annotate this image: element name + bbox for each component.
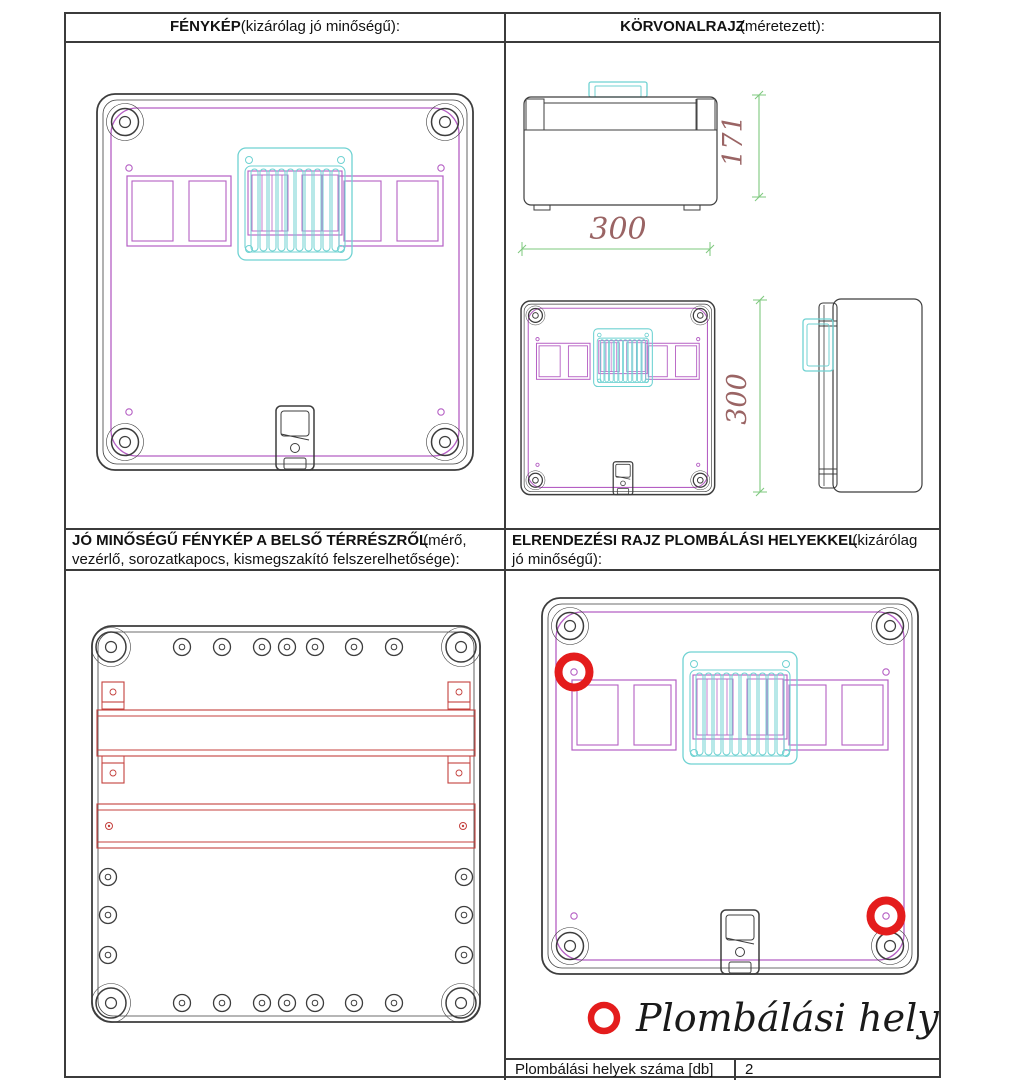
legend-seal-circle [591, 1005, 617, 1031]
dimension-label: 300 [589, 212, 646, 247]
sealing-layout-drawing: Plombálási hely [506, 569, 943, 1058]
outline-title-rest: (méretezett): [740, 18, 825, 35]
outline-dimension-drawing: 171300300 [506, 41, 943, 528]
seal-location-marker [871, 901, 902, 932]
document-page: { "colors": { "line": "#3d3d3d", "magent… [0, 0, 1024, 1088]
form-table: FÉNYKÉP(kizárólag jó minőségű): KÖRVONAL… [64, 12, 941, 1078]
seal-location-marker [559, 657, 590, 688]
layout-title-bold: ELRENDEZÉSI RAJZ PLOMBÁLÁSI HELYEKKEL [512, 532, 857, 549]
enclosure-photo-drawing [95, 92, 475, 472]
seal-count-label: Plombálási helyek száma [db] [506, 1060, 734, 1080]
interior-title: JÓ MINŐSÉGŰ FÉNYKÉP A BELSŐ TÉRRÉSZRŐL(m… [66, 531, 504, 568]
table-divider [66, 569, 939, 571]
table-divider [66, 528, 939, 530]
legend-label: Plombálási hely [635, 996, 939, 1040]
photo-title-rest: (kizárólag jó minőségű): [241, 18, 400, 35]
layout-title: ELRENDEZÉSI RAJZ PLOMBÁLÁSI HELYEKKEL(ki… [506, 531, 939, 568]
dimension-label: 300 [722, 373, 753, 425]
outline-title-bold: KÖRVONALRAJZ [620, 18, 745, 35]
seal-count-value: 2 [736, 1060, 939, 1080]
interior-photo-drawing [90, 624, 482, 1024]
photo-title-bold: FÉNYKÉP [170, 18, 241, 35]
table-divider [504, 14, 506, 1080]
interior-title-bold: JÓ MINŐSÉGŰ FÉNYKÉP A BELSŐ TÉRRÉSZRŐL [72, 532, 428, 549]
photo-title: FÉNYKÉP(kizárólag jó minőségű): [66, 14, 504, 41]
table-divider [66, 41, 939, 43]
dimension-label: 171 [718, 115, 749, 167]
outline-title: KÖRVONALRAJZ(méretezett): [506, 14, 939, 41]
